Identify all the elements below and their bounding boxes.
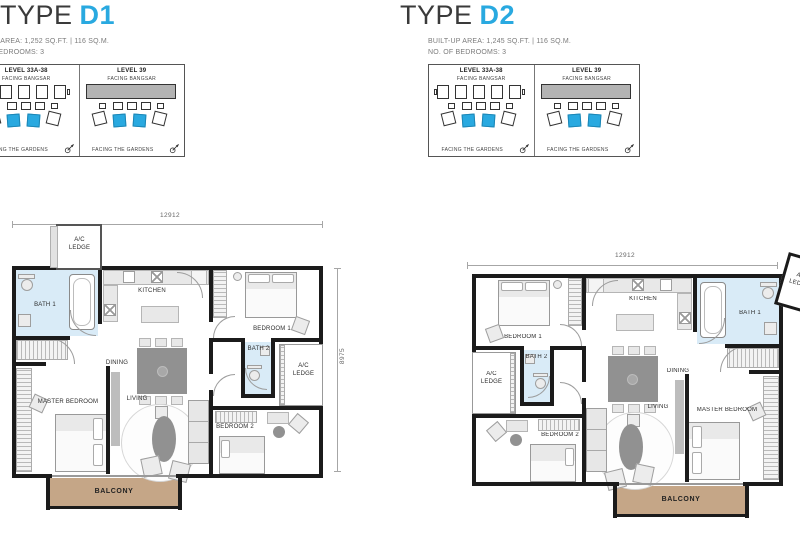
type-d2-title-code: D2 — [480, 0, 516, 30]
kitchen-sink — [660, 279, 672, 291]
keyplan-facing-top-label: FACING BANGSAR — [535, 76, 640, 82]
building-unit — [18, 85, 30, 99]
side-table — [553, 280, 562, 289]
building-unit — [473, 85, 485, 99]
building-unit — [606, 111, 622, 127]
kitchen-sink — [123, 271, 135, 283]
building-core — [476, 102, 486, 110]
sink — [764, 322, 777, 335]
wall — [209, 338, 213, 374]
wall — [749, 370, 783, 374]
building-core — [141, 102, 151, 110]
room-label-bath2: BATH 2 — [246, 346, 271, 354]
door-arc — [213, 374, 235, 396]
room-label-dining: DINING — [658, 368, 698, 376]
floorplan-graphic: A/C LEDGE A/C LEDGE BATH 1 KITCHEN BEDRO… — [5, 210, 335, 512]
building-unit-highlighted — [482, 114, 496, 128]
kitchen-island — [616, 314, 654, 331]
type-d1-info: BUILT-UP AREA: 1,252 SQ.FT. | 116 SQ.M. … — [0, 37, 109, 58]
keyplan-facing-bottom-label: FACING THE GARDENS — [0, 147, 61, 153]
type-d2-title-prefix: TYPE — [400, 0, 473, 30]
room-label-dining: DINING — [97, 360, 137, 368]
wall — [550, 346, 586, 350]
desk — [506, 420, 528, 432]
wall — [582, 346, 586, 382]
dining-centerpiece — [627, 374, 638, 385]
wardrobe — [215, 411, 257, 423]
building-core — [21, 102, 31, 110]
wall — [725, 344, 783, 348]
building-unit — [54, 85, 66, 99]
wall — [685, 374, 689, 482]
building-unit-highlighted — [567, 114, 581, 128]
sofa — [586, 408, 607, 472]
balcony-slider — [619, 483, 743, 485]
keyplan-panel-level-39: LEVEL 39 FACING BANGSAR FACI — [79, 65, 185, 156]
wall — [472, 346, 520, 350]
building-unit — [151, 111, 167, 127]
pillow — [248, 274, 270, 283]
room-label-living: LIVING — [117, 396, 157, 404]
door-arc — [560, 324, 582, 346]
building-core — [113, 102, 123, 110]
wall — [241, 394, 275, 398]
dimension-height-line — [337, 268, 338, 472]
building-unit-highlighted — [132, 114, 146, 128]
door-arc — [720, 346, 746, 372]
pillow — [221, 440, 230, 458]
wall — [745, 486, 749, 518]
wardrobe — [763, 376, 779, 480]
building-unit — [91, 111, 107, 127]
north-arrow-icon — [169, 143, 180, 154]
building-unit-highlighted — [7, 114, 21, 128]
dining-chair — [612, 346, 624, 355]
building-unit-highlighted — [462, 114, 476, 128]
building-core — [506, 103, 513, 109]
door-arc — [213, 316, 235, 338]
wardrobe — [568, 278, 582, 326]
ac-ledge-vent — [510, 353, 515, 413]
floorplan-brochure-page: TYPED1 BUILT-UP AREA: 1,252 SQ.FT. | 116… — [0, 0, 800, 552]
room-label-ac-ledge: A/C LEDGE — [787, 270, 800, 292]
wall — [209, 338, 245, 342]
building-unit — [36, 85, 48, 99]
toilet — [762, 287, 774, 299]
building-core — [51, 103, 58, 109]
building-unit — [441, 111, 457, 127]
wall — [693, 274, 697, 332]
building-unit-highlighted — [587, 114, 601, 128]
building-diagram — [540, 84, 635, 130]
wall — [275, 338, 323, 342]
tv-console — [675, 380, 684, 454]
stove — [151, 271, 163, 283]
wall — [176, 474, 323, 478]
dining-chair — [171, 396, 183, 405]
wardrobe — [213, 270, 227, 318]
building-unit — [491, 85, 503, 99]
wall — [582, 274, 586, 330]
ac-ledge-top: A/C LEDGE — [56, 224, 102, 270]
floorplan-graphic-slot: A/C LEDGE A/C LEDGE BATH 1 KITCHEN BEDRO… — [460, 218, 790, 520]
pillow — [272, 274, 294, 283]
wall — [178, 478, 182, 510]
door-arc — [49, 338, 75, 364]
room-label-bath1: BATH 1 — [20, 302, 70, 310]
type-d1-title-prefix: TYPE — [0, 0, 73, 30]
dining-centerpiece — [157, 366, 168, 377]
keyplan-facing-top-label: FACING BANGSAR — [429, 76, 534, 82]
wall — [98, 266, 102, 324]
wall — [472, 482, 619, 486]
room-label-master-bedroom: MASTER BEDROOM — [682, 407, 772, 415]
tv-console — [111, 372, 120, 446]
wall — [209, 266, 213, 322]
sink — [18, 314, 31, 327]
sofa — [188, 400, 209, 464]
chair — [510, 434, 522, 446]
room-label-kitchen: KITCHEN — [613, 296, 673, 304]
type-d2-info: BUILT-UP AREA: 1,245 SQ.FT. | 116 SQ.M. … — [428, 37, 571, 58]
keyplan-level-label: LEVEL 33A-38 — [429, 68, 534, 74]
room-label-bath1: BATH 1 — [725, 310, 775, 318]
toilet — [21, 279, 33, 291]
room-label-bedroom2: BEDROOM 2 — [213, 424, 257, 432]
floorplan-graphic: A/C LEDGE A/C LEDGE BATH 1 KITCHEN BEDRO… — [460, 218, 790, 520]
wall — [50, 506, 178, 509]
ac-ledge-vent — [50, 226, 58, 268]
wall — [271, 338, 275, 398]
building-unit — [522, 89, 525, 95]
type-d2-title: TYPED2 — [400, 0, 800, 31]
floorplan-d2: 12912 — [452, 218, 800, 530]
facilities-deck — [86, 84, 176, 99]
room-label-balcony: BALCONY — [617, 495, 745, 504]
keyplan-panel-level-33a-38: LEVEL 33A-38 FACING BANGSAR — [429, 65, 534, 156]
type-d2-area-text: BUILT-UP AREA: 1,245 SQ.FT. | 116 SQ.M. — [428, 37, 571, 48]
building-unit-highlighted — [27, 114, 41, 128]
wall — [241, 338, 245, 398]
wall — [520, 402, 554, 406]
type-d1-title: TYPED1 — [0, 0, 400, 31]
wall — [213, 406, 323, 410]
building-core — [612, 103, 619, 109]
building-core — [490, 102, 500, 110]
wall — [472, 414, 582, 418]
keyplan-level-label: LEVEL 33A-38 — [0, 68, 79, 74]
type-d1-title-code: D1 — [80, 0, 116, 30]
wall — [12, 336, 70, 340]
room-label-bath2: BATH 2 — [524, 354, 549, 362]
dining-chair — [139, 338, 151, 347]
pillow — [93, 418, 103, 440]
keyplan-facing-top-label: FACING BANGSAR — [80, 76, 185, 82]
type-d1-area-text: BUILT-UP AREA: 1,252 SQ.FT. | 116 SQ.M. — [0, 37, 109, 48]
balcony-slider — [52, 475, 176, 477]
wall — [209, 390, 213, 474]
ac-ledge-right: A/C LEDGE — [279, 344, 323, 406]
wardrobe — [16, 368, 32, 472]
keyplan-facing-bottom-label: FACING THE GARDENS — [535, 147, 622, 153]
room-label-living: LIVING — [638, 404, 678, 412]
dining-chair — [644, 346, 656, 355]
dining-chair — [155, 338, 167, 347]
building-core — [127, 102, 137, 110]
floorplan-d1: 12912 8975 — [5, 210, 360, 522]
room-label-master-bedroom: MASTER BEDROOM — [23, 399, 113, 407]
building-unit — [501, 111, 517, 127]
dining-chair — [171, 338, 183, 347]
building-core — [554, 103, 561, 109]
type-d1-section: TYPED1 BUILT-UP AREA: 1,252 SQ.FT. | 116… — [0, 0, 400, 552]
ac-ledge-right: A/C LEDGE — [472, 352, 516, 414]
keyplan-box: LEVEL 33A-38 FACING BANGSAR — [0, 64, 185, 157]
wall — [472, 274, 783, 278]
room-label-ac-ledge: A/C LEDGE — [67, 237, 92, 253]
keyplan-box: LEVEL 33A-38 FACING BANGSAR — [428, 64, 640, 157]
side-table — [233, 272, 242, 281]
wall — [106, 366, 110, 474]
chair — [273, 426, 285, 438]
stove — [104, 304, 116, 316]
room-label-bedroom2: BEDROOM 2 — [538, 432, 582, 440]
kitchen-island — [141, 306, 179, 323]
building-unit-highlighted — [112, 114, 126, 128]
building-unit — [0, 85, 12, 99]
dimension-height-label: 8975 — [339, 348, 346, 364]
armchair — [288, 413, 309, 434]
type-d2-section: TYPED2 BUILT-UP AREA: 1,245 SQ.FT. | 116… — [400, 0, 800, 552]
wall — [582, 398, 586, 482]
building-diagram — [85, 84, 180, 130]
room-label-ac-ledge: A/C LEDGE — [479, 371, 504, 387]
stove — [679, 312, 691, 324]
type-d2-bedrooms-text: NO. OF BEDROOMS: 3 — [428, 48, 571, 59]
wall — [12, 266, 16, 478]
keyplan-facing-top-label: FACING BANGSAR — [0, 76, 79, 82]
stove — [632, 279, 644, 291]
room-label-bedroom1: BEDROOM 1 — [242, 326, 302, 334]
pillow — [501, 282, 523, 291]
building-core — [157, 103, 164, 109]
desk — [267, 412, 289, 424]
building-unit — [0, 111, 1, 127]
keyplan-facing-bottom-label: FACING THE GARDENS — [429, 147, 516, 153]
facilities-deck — [541, 84, 631, 99]
keyplan-panel-level-39: LEVEL 39 FACING BANGSAR FACI — [534, 65, 640, 156]
door-arc — [560, 382, 582, 404]
building-unit — [46, 111, 62, 127]
building-unit — [434, 89, 437, 95]
keyplan-level-label: LEVEL 39 — [80, 68, 185, 74]
pillow — [692, 426, 702, 448]
building-core — [99, 103, 106, 109]
north-arrow-icon — [519, 143, 530, 154]
building-unit — [546, 111, 562, 127]
building-core — [596, 102, 606, 110]
dining-chair — [612, 404, 624, 413]
pillow — [93, 444, 103, 466]
room-label-balcony: BALCONY — [50, 487, 178, 496]
building-unit — [67, 89, 70, 95]
armchair — [486, 421, 507, 442]
room-label-bedroom1: BEDROOM 1 — [493, 334, 553, 342]
type-d1-bedrooms-text: NO. OF BEDROOMS: 3 — [0, 48, 109, 59]
wall — [617, 514, 745, 517]
ac-ledge-vent — [280, 345, 285, 405]
room-label-ac-ledge: A/C LEDGE — [291, 363, 316, 379]
building-core — [582, 102, 592, 110]
wall — [550, 346, 554, 406]
pillow — [692, 452, 702, 474]
building-diagram — [434, 84, 529, 130]
building-unit — [509, 85, 521, 99]
building-core — [568, 102, 578, 110]
building-diagram — [0, 84, 74, 130]
pillow — [565, 448, 574, 466]
building-core — [7, 102, 17, 110]
wardrobe — [538, 419, 580, 431]
north-arrow-icon — [624, 143, 635, 154]
keyplan-d1: LEVEL 33A-38 FACING BANGSAR — [0, 64, 185, 157]
keyplan-d2: LEVEL 33A-38 FACING BANGSAR — [428, 64, 640, 157]
room-label-kitchen: KITCHEN — [122, 288, 182, 296]
building-unit — [437, 85, 449, 99]
building-core — [35, 102, 45, 110]
dining-chair — [628, 346, 640, 355]
wall — [12, 362, 46, 366]
building-core — [448, 103, 455, 109]
keyplan-panel-level-33a-38: LEVEL 33A-38 FACING BANGSAR — [0, 65, 79, 156]
wall — [743, 482, 783, 486]
building-core — [462, 102, 472, 110]
building-unit — [455, 85, 467, 99]
north-arrow-icon — [64, 143, 75, 154]
keyplan-level-label: LEVEL 39 — [535, 68, 640, 74]
pillow — [525, 282, 547, 291]
keyplan-facing-bottom-label: FACING THE GARDENS — [80, 147, 167, 153]
